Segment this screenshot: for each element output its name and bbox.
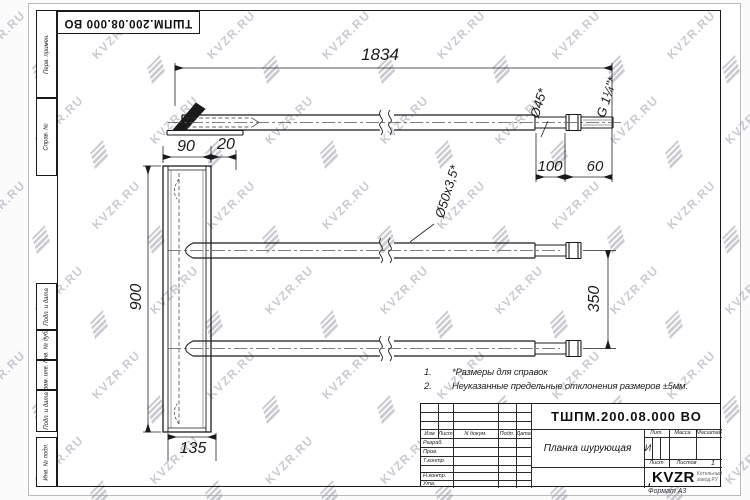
margin-box-sprav-no: Справ. № bbox=[36, 98, 57, 176]
kvzr-logo-icon bbox=[647, 470, 650, 486]
kvzr-logo-text: KVZR bbox=[652, 469, 695, 486]
tb-doc-number: ТШПМ.200.08.000 ВО bbox=[531, 404, 722, 429]
margin-box-vzam-inv: Взам. инв. № bbox=[36, 360, 57, 390]
tb-header-list: Лист bbox=[438, 429, 453, 438]
dim-overall-length: 1834 bbox=[348, 45, 412, 65]
note-1-number: 1. bbox=[424, 367, 432, 378]
dim-plate-width: 90 bbox=[166, 138, 206, 156]
note-1-text: *Размеры для справок bbox=[452, 367, 548, 378]
margin-label-vzam-inv: Взам. инв. № bbox=[44, 360, 50, 390]
margin-label-sprav-no: Справ. № bbox=[44, 123, 50, 150]
drawing-sheet: KVZR.RUKVZR.RUKVZR.RUKVZR.RUKVZR.RUKVZR.… bbox=[0, 0, 750, 500]
tb-header-podp: Подп. bbox=[498, 429, 516, 438]
top-stamp-box: ТШПМ.200.08.000 ВО bbox=[57, 11, 200, 34]
tb-row-utv: Утв. bbox=[421, 480, 455, 488]
tb-row-prov: Пров. bbox=[421, 447, 455, 456]
margin-box-podp-data-2: Подп. и дата bbox=[36, 390, 57, 432]
margin-box-perv-primen: Перв. примен. bbox=[36, 10, 57, 98]
tb-row-tkontr: Т.контр. bbox=[421, 456, 455, 465]
front-view bbox=[163, 166, 581, 432]
tb-header-masshtab: Масштаб bbox=[696, 429, 722, 437]
tb-header-massa: Масса bbox=[669, 429, 696, 437]
tb-header-ndokum: N докум. bbox=[453, 429, 498, 438]
margin-label-podp-data-2: Подп. и дата bbox=[44, 392, 50, 430]
margin-label-inv-dubl: Инв. № дубл. bbox=[44, 330, 50, 360]
note-2-text: Неуказанные предельные отклонения размер… bbox=[452, 381, 688, 392]
format-label: Формат А3 bbox=[648, 488, 686, 495]
tb-listov-value: 1 bbox=[704, 459, 722, 467]
kvzr-sub-line2: завод.РУ bbox=[697, 478, 722, 484]
top-view bbox=[167, 103, 613, 135]
margin-box-inv-dubl: Инв. № дубл. bbox=[36, 330, 57, 360]
dim-plate-height: 900 bbox=[128, 275, 146, 319]
kvzr-logo-cell: KVZR Котельный завод.РУ bbox=[644, 467, 722, 488]
tb-header-lit: Лит. bbox=[644, 429, 669, 437]
tb-row-nkontr: Н.контр. bbox=[421, 472, 455, 480]
tb-header-listov: Листов bbox=[669, 459, 704, 467]
dim-foot-width: 135 bbox=[167, 440, 219, 458]
kvzr-logo-subtitle: Котельный завод.РУ bbox=[697, 472, 722, 483]
dim-offset: 20 bbox=[206, 136, 246, 154]
margin-label-podp-data-1: Подп. и дата bbox=[44, 288, 50, 326]
margin-box-podp-data-1: Подп. и дата bbox=[36, 283, 57, 330]
tb-lit-value: И bbox=[644, 437, 652, 459]
margin-box-inv-podl: Инв. № подл. bbox=[36, 437, 57, 487]
title-block: Изм Лист N докум. Подп. Дата Разраб. Про… bbox=[420, 403, 721, 487]
margin-label-perv-primen: Перв. примен. bbox=[44, 34, 50, 74]
dim-thread-length: 60 bbox=[578, 158, 612, 175]
margin-label-inv-podl: Инв. № подл. bbox=[44, 443, 50, 480]
note-2-number: 2. bbox=[424, 381, 432, 392]
dim-tube-spacing: 350 bbox=[586, 279, 602, 319]
tb-header-izm: Изм bbox=[421, 429, 438, 438]
top-stamp-code: ТШПМ.200.08.000 ВО bbox=[64, 17, 192, 29]
tb-row-razrab: Разраб. bbox=[421, 438, 455, 447]
dim-end-turn: 100 bbox=[533, 158, 567, 175]
tb-part-name: Планка шурующая bbox=[531, 429, 644, 467]
tb-header-data: Дата bbox=[516, 429, 531, 438]
tb-header-list2: Лист bbox=[644, 459, 669, 467]
